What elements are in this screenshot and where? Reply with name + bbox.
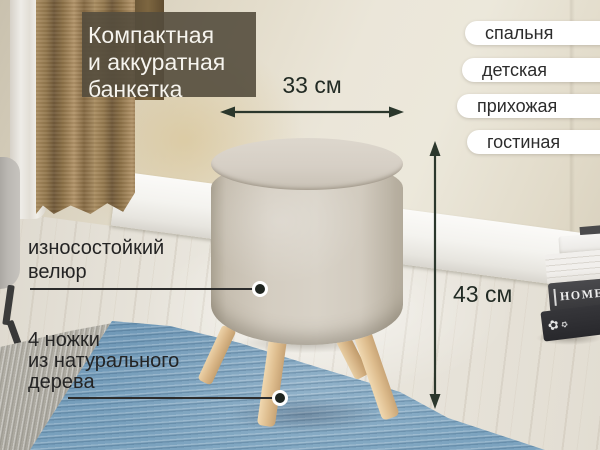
room-tag-livingroom: гостиная bbox=[467, 130, 600, 154]
room-tag-hallway: прихожая bbox=[457, 94, 600, 118]
legs-callout-line-2: из натурального bbox=[28, 351, 179, 372]
stool-seat-top bbox=[211, 138, 403, 190]
product-photo-scene: HOME ✿ ✿ Компактная и аккуратная банкетк… bbox=[0, 0, 600, 450]
room-tag-label: гостиная bbox=[487, 132, 560, 153]
book-ornament-icon bbox=[553, 289, 556, 306]
title-line-1: Компактная bbox=[88, 22, 256, 49]
material-callout-line-1: износостойкий bbox=[28, 236, 164, 260]
legs-callout: 4 ножки из натурального дерева bbox=[28, 330, 179, 393]
height-dimension-arrow bbox=[427, 139, 443, 411]
legs-pointer-dot bbox=[272, 390, 288, 406]
flower-ornament-icon-small: ✿ bbox=[559, 319, 569, 330]
material-callout-line-2: велюр bbox=[28, 260, 164, 284]
legs-pointer-line bbox=[68, 397, 273, 399]
armchair-edge bbox=[0, 157, 20, 289]
room-tag-kids: детская bbox=[462, 58, 600, 82]
width-dimension-label: 33 см bbox=[218, 72, 406, 99]
legs-callout-line-3: дерева bbox=[28, 372, 179, 393]
legs-callout-line-1: 4 ножки bbox=[28, 330, 179, 351]
height-dimension-label: 43 см bbox=[453, 281, 512, 308]
material-callout: износостойкий велюр bbox=[28, 236, 164, 284]
room-tag-label: прихожая bbox=[477, 96, 557, 117]
room-tag-bedroom: спальня bbox=[465, 21, 600, 45]
material-pointer-dot bbox=[252, 281, 268, 297]
width-dimension-arrow bbox=[218, 104, 406, 120]
book-spine-text: HOME bbox=[559, 286, 600, 305]
material-pointer-line bbox=[30, 288, 254, 290]
room-tag-label: детская bbox=[482, 60, 547, 81]
room-tag-label: спальня bbox=[485, 23, 553, 44]
